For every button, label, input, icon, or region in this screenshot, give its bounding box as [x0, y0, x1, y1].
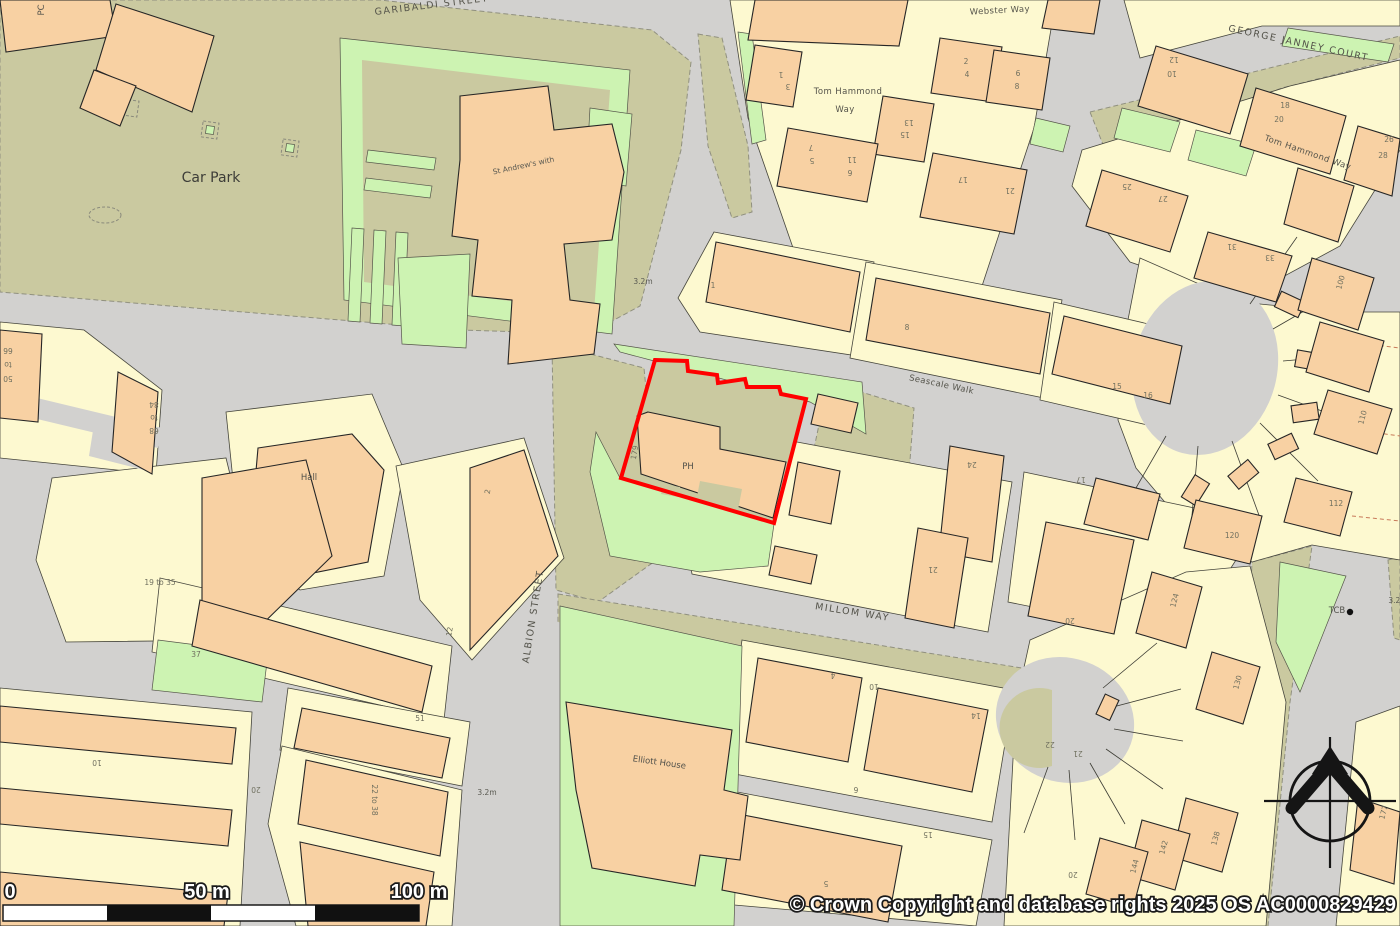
map-label: 20: [251, 785, 261, 794]
map-label: 21: [1005, 186, 1015, 195]
map-label: 1: [778, 70, 783, 79]
map-label: 14: [971, 711, 981, 720]
map-label: 3: [785, 82, 790, 91]
map-label: 18: [1280, 101, 1290, 110]
buildings-shape: [1291, 402, 1319, 422]
map-label: to: [150, 413, 158, 422]
map-label: 37: [191, 650, 201, 659]
map-label: 31: [1227, 242, 1237, 251]
map-label: 3.2m: [633, 277, 652, 286]
scale-bar-shape: [107, 905, 211, 921]
map-label: 12: [444, 626, 455, 637]
map-label: 3.2m: [1388, 596, 1400, 605]
map-canvas: GARIBALDI STREETWebster WayGEORGE JANNEY…: [0, 0, 1400, 926]
buildings-shape: [789, 462, 840, 524]
scale-label-mid: 50 m: [184, 881, 230, 903]
map-label: 6: [853, 785, 858, 794]
map-label: 6: [1016, 69, 1021, 78]
tcb-marker: [1347, 609, 1353, 615]
detail-lines-shape: [285, 143, 294, 152]
buildings-shape: [1042, 0, 1100, 34]
map-label: 17: [1076, 475, 1086, 484]
map-label: 19 to 35: [144, 578, 176, 587]
map-label: 15: [923, 830, 933, 839]
map-label: 2: [964, 57, 969, 66]
map-label: 84: [149, 400, 159, 409]
map-label: 50: [3, 374, 13, 383]
buildings-shape: [1350, 798, 1400, 884]
map-label: 33: [1265, 253, 1275, 262]
map-label: 22 to 38: [370, 784, 379, 816]
map-label: 24: [967, 460, 977, 469]
map-label: PC: [37, 4, 47, 15]
map-view: GARIBALDI STREETWebster WayGEORGE JANNEY…: [0, 0, 1400, 926]
map-label: 66: [3, 346, 13, 355]
map-label: Car Park: [182, 170, 242, 186]
map-label: 10: [92, 758, 102, 767]
buildings-shape: [873, 96, 934, 162]
map-label: 68: [149, 426, 159, 435]
map-label: 20: [1065, 616, 1075, 625]
scale-label-end: 100 m: [391, 881, 448, 903]
map-label: 21: [928, 565, 938, 574]
map-label: 27: [1158, 194, 1168, 203]
map-label: 10: [1167, 69, 1177, 78]
map-label: 21: [1073, 749, 1083, 758]
map-label: 6: [847, 168, 852, 177]
scale-bar-shape: [315, 905, 419, 921]
green-spaces-shape: [398, 254, 470, 348]
map-label: 15: [1112, 382, 1122, 391]
map-label: 16: [1143, 391, 1153, 400]
map-label: 20: [1068, 870, 1078, 879]
scale-label-start: 0: [4, 881, 15, 903]
map-label: 7: [808, 143, 813, 152]
map-label: 28: [1378, 151, 1388, 160]
map-label: 13: [904, 118, 914, 127]
copyright-text: © Crown Copyright and database rights 20…: [790, 894, 1396, 916]
map-label: 26: [1384, 135, 1394, 144]
map-label: 51: [415, 714, 425, 723]
map-label: 15: [900, 130, 910, 139]
map-label: 3.2m: [477, 788, 496, 797]
map-label: 8: [905, 323, 910, 332]
buildings-shape: [748, 0, 908, 46]
map-label: Way: [835, 105, 854, 115]
map-label: 12: [1169, 55, 1179, 64]
map-label: 20: [1274, 115, 1284, 124]
buildings-shape: [746, 45, 802, 107]
map-label: 10: [869, 682, 879, 691]
map-label: 5: [823, 879, 828, 888]
map-label: PH: [682, 462, 694, 472]
detail-lines-shape: [205, 125, 214, 134]
map-label: 4: [830, 671, 835, 680]
map-label: 4: [965, 70, 970, 79]
map-label: 11: [847, 155, 857, 164]
map-label: 5: [809, 156, 814, 165]
map-label: 17: [958, 175, 968, 184]
map-label: Tom Hammond: [813, 87, 882, 97]
map-label: 25: [1122, 182, 1132, 191]
map-label: 8: [1015, 82, 1020, 91]
buildings-shape: [1028, 522, 1134, 634]
map-label: 22: [1045, 740, 1055, 749]
map-label: to: [4, 360, 12, 369]
map-label: 120: [1225, 531, 1240, 540]
buildings-shape: [986, 50, 1050, 110]
map-label: 1: [711, 281, 716, 290]
map-label: Hall: [301, 473, 317, 483]
map-label: 112: [1329, 499, 1344, 508]
map-label: TCB: [1328, 606, 1346, 616]
